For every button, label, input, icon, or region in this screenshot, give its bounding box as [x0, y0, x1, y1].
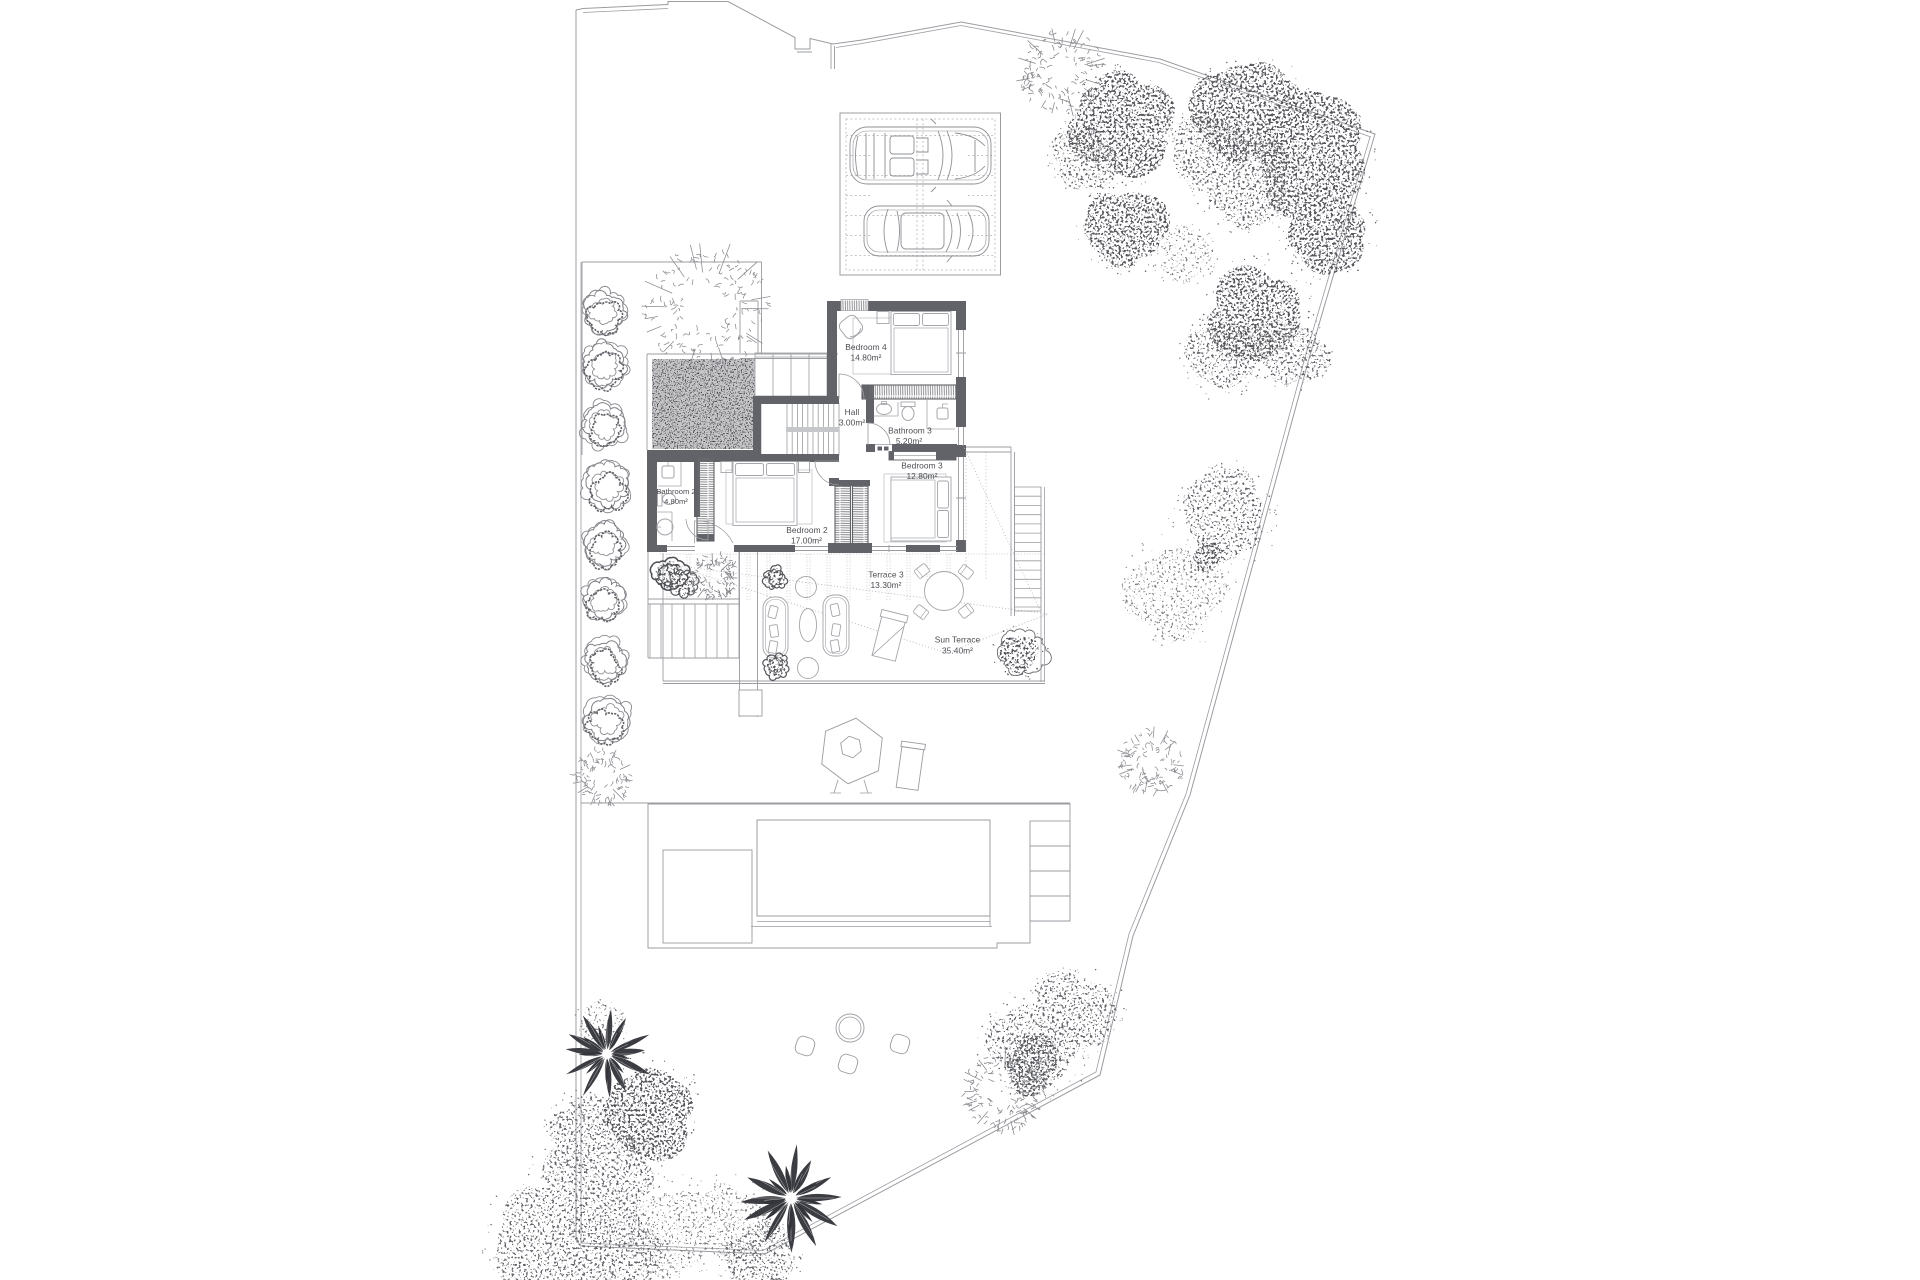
svg-text:Bedroom 3: Bedroom 3 [901, 461, 943, 471]
svg-text:13.30m²: 13.30m² [870, 580, 901, 590]
svg-text:Hall: Hall [845, 407, 860, 417]
svg-text:5.20m²: 5.20m² [896, 436, 923, 446]
svg-text:14.80m²: 14.80m² [850, 353, 881, 363]
svg-text:12.80m²: 12.80m² [906, 471, 937, 481]
svg-text:Bedroom 2: Bedroom 2 [786, 525, 828, 535]
svg-text:Bathroom 3: Bathroom 3 [888, 426, 932, 436]
svg-text:Terrace 3: Terrace 3 [868, 570, 904, 580]
svg-text:17.00m²: 17.00m² [791, 536, 822, 546]
svg-text:35.40m²: 35.40m² [942, 646, 973, 656]
svg-text:3.00m²: 3.00m² [839, 418, 866, 428]
svg-text:Bedroom 4: Bedroom 4 [845, 342, 887, 352]
svg-text:4.80m²: 4.80m² [664, 497, 688, 506]
svg-text:Bathroom 2: Bathroom 2 [656, 487, 695, 496]
svg-text:Sun Terrace: Sun Terrace [935, 635, 981, 645]
